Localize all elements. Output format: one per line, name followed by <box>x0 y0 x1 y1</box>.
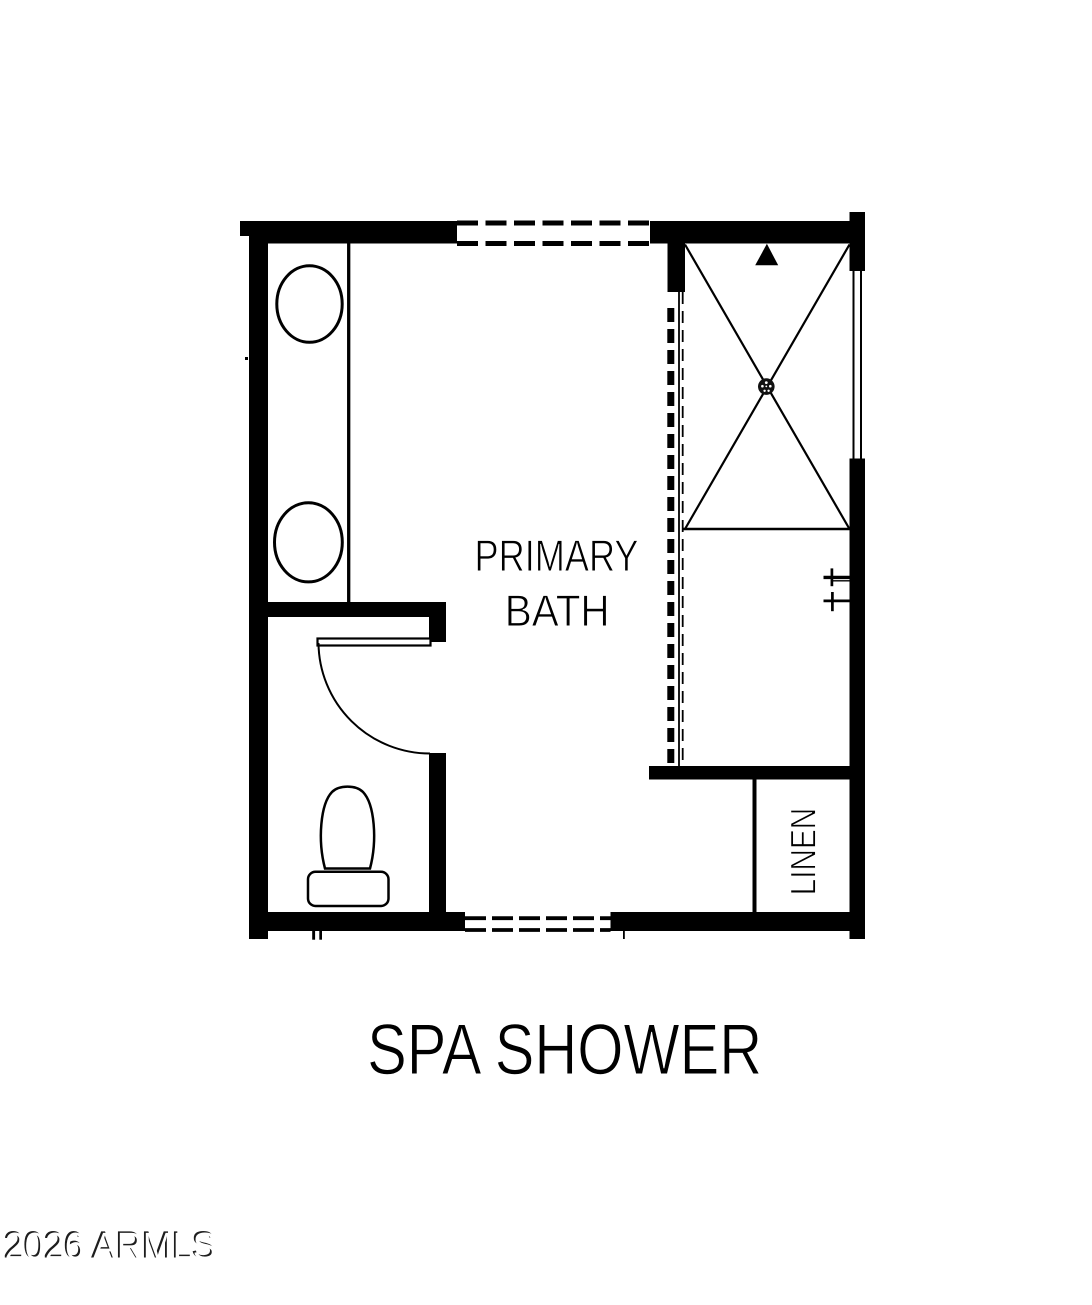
svg-text:2026 ARMLS: 2026 ARMLS <box>5 1226 217 1268</box>
svg-text:BATH: BATH <box>505 587 610 636</box>
svg-text:LINEN: LINEN <box>783 808 824 896</box>
svg-text:SPA SHOWER: SPA SHOWER <box>367 1010 762 1090</box>
svg-text:PRIMARY: PRIMARY <box>475 532 639 581</box>
